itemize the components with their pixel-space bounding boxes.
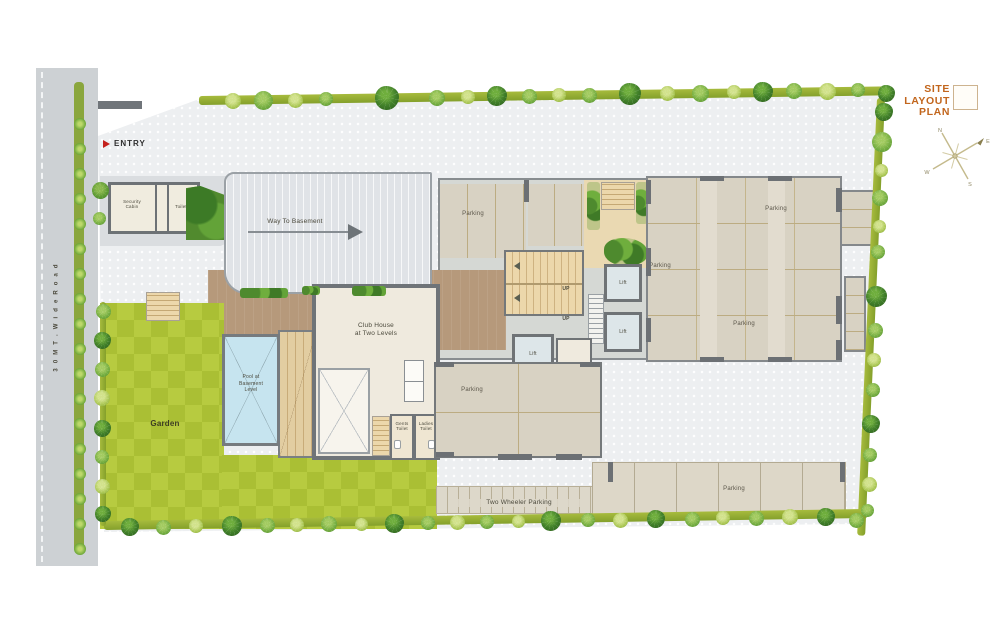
tree-icon — [225, 93, 241, 109]
tree-icon — [582, 88, 597, 103]
legend-box — [953, 85, 978, 110]
wall-tick — [646, 248, 651, 276]
wall-tick — [608, 462, 613, 482]
bush-icon — [74, 393, 86, 405]
tree-icon — [716, 511, 730, 525]
compass-west-label: W — [924, 170, 930, 176]
wall-tick — [498, 454, 532, 460]
tree-icon — [875, 103, 893, 121]
tree-icon — [222, 516, 242, 536]
bush-icon — [74, 518, 86, 530]
tree-icon — [613, 513, 628, 528]
tree-icon — [851, 83, 865, 97]
tree-icon — [92, 182, 109, 199]
tree-icon — [819, 83, 836, 100]
bush-icon — [74, 193, 86, 205]
wall-tick — [700, 176, 724, 181]
tree-icon — [552, 88, 566, 102]
tree-icon — [866, 286, 887, 307]
wall-tick — [556, 454, 582, 460]
wall-tick — [700, 357, 724, 362]
wall-tick — [836, 188, 842, 212]
tree-icon — [95, 506, 111, 522]
tree-icon — [254, 91, 273, 110]
tree-icon — [866, 383, 880, 397]
tree-icon — [522, 89, 537, 104]
tree-icon — [692, 85, 709, 102]
tree-icon — [121, 518, 139, 536]
tree-icon — [156, 520, 171, 535]
bush-icon — [74, 143, 86, 155]
tree-icon — [321, 516, 337, 532]
tree-icon — [450, 515, 465, 530]
compass-icon: N E S W — [915, 126, 995, 188]
tree-icon — [189, 519, 203, 533]
bush-icon — [74, 318, 86, 330]
tree-icon — [421, 516, 435, 530]
tree-icon — [94, 390, 110, 406]
bush-icon — [74, 218, 86, 230]
wall-tick — [836, 296, 842, 324]
tree-icon — [319, 92, 333, 106]
tree-icon — [96, 304, 111, 319]
tree-icon — [619, 83, 641, 105]
bush-icon — [74, 268, 86, 280]
compass-north-label: N — [938, 128, 942, 134]
tree-icon — [94, 332, 111, 349]
wall-tick — [580, 362, 600, 367]
tree-icon — [867, 353, 881, 367]
tree-icon — [849, 513, 864, 528]
tree-icon — [355, 518, 368, 531]
tree-icon — [647, 510, 665, 528]
bush-icon — [74, 443, 86, 455]
tree-icon — [541, 511, 561, 531]
tree-icon — [461, 90, 475, 104]
tree-icon — [429, 90, 445, 106]
wall-tick — [840, 462, 845, 482]
site-layout-plan: 3 0 M T . W i d e R o a d Security Cabin… — [0, 0, 1000, 632]
bush-icon — [74, 118, 86, 130]
tree-icon — [862, 477, 877, 492]
tree-icon — [290, 518, 304, 532]
tree-icon — [862, 415, 880, 433]
tree-icon — [375, 86, 399, 110]
wall-tick — [436, 452, 454, 457]
tree-icon — [871, 245, 885, 259]
wall-tick — [768, 357, 792, 362]
tree-icon — [95, 479, 110, 494]
tree-icon — [786, 83, 802, 99]
tree-icon — [581, 513, 595, 527]
entry-arrow-icon — [103, 140, 110, 148]
perimeter-trees — [0, 0, 1000, 632]
bush-icon — [74, 418, 86, 430]
tree-icon — [480, 515, 494, 529]
entry-label: ENTRY — [114, 139, 146, 148]
tree-icon — [873, 220, 886, 233]
tree-icon — [872, 132, 892, 152]
bush-icon — [74, 468, 86, 480]
bush-icon — [74, 243, 86, 255]
tree-icon — [872, 190, 888, 206]
bush-icon — [74, 293, 86, 305]
tree-icon — [727, 85, 741, 99]
compass-south-label: S — [968, 182, 972, 188]
tree-icon — [95, 450, 109, 464]
wall-tick — [646, 318, 651, 342]
tree-icon — [94, 420, 111, 437]
wall-tick — [768, 176, 792, 181]
tree-icon — [288, 93, 303, 108]
wall-tick — [524, 180, 529, 202]
bush-icon — [74, 493, 86, 505]
tree-icon — [753, 82, 773, 102]
tree-icon — [861, 504, 874, 517]
bush-icon — [74, 543, 86, 555]
tree-icon — [782, 509, 798, 525]
tree-icon — [385, 514, 404, 533]
bush-icon — [74, 368, 86, 380]
page-title: SITE LAYOUT PLAN — [904, 84, 950, 119]
tree-icon — [868, 323, 883, 338]
compass-east-label: E — [986, 139, 990, 145]
tree-icon — [875, 164, 888, 177]
tree-icon — [749, 511, 764, 526]
bush-icon — [74, 343, 86, 355]
wall-tick — [434, 362, 454, 367]
tree-icon — [93, 212, 106, 225]
tree-icon — [95, 362, 110, 377]
wall-tick — [646, 180, 651, 204]
tree-icon — [260, 518, 275, 533]
tree-icon — [817, 508, 835, 526]
bush-icon — [74, 168, 86, 180]
tree-icon — [685, 512, 700, 527]
tree-icon — [878, 85, 895, 102]
tree-icon — [487, 86, 507, 106]
tree-icon — [863, 448, 877, 462]
tree-icon — [512, 515, 525, 528]
tree-icon — [660, 86, 675, 101]
wall-tick — [836, 340, 842, 360]
